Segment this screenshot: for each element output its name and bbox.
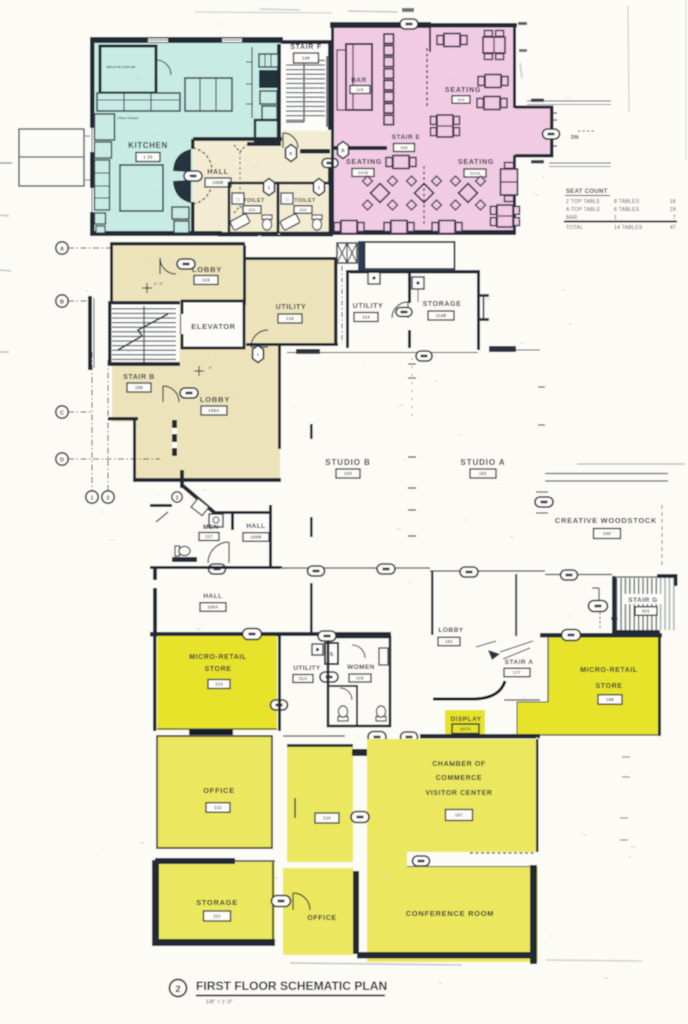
svg-text:TOILET: TOILET <box>294 198 316 204</box>
svg-text:198: 198 <box>135 385 143 390</box>
svg-text:103: 103 <box>344 471 352 476</box>
svg-text:101: 101 <box>445 639 453 644</box>
svg-text:CHAMBER OF: CHAMBER OF <box>432 761 486 768</box>
svg-text:SEAT COUNT: SEAT COUNT <box>566 189 608 195</box>
svg-text:117: 117 <box>205 534 213 539</box>
svg-text:STAIR F: STAIR F <box>290 44 322 51</box>
svg-text:I: I <box>257 352 258 357</box>
svg-text:47: 47 <box>670 225 676 231</box>
svg-text:1/8" = 1'-0": 1/8" = 1'-0" <box>206 1000 233 1006</box>
svg-text:LOBBY: LOBBY <box>438 627 463 634</box>
svg-text:1: 1 <box>614 215 617 221</box>
svg-text:STUDIO A: STUDIO A <box>460 458 505 467</box>
svg-text:2: 2 <box>106 496 109 502</box>
svg-text:121: 121 <box>248 208 255 212</box>
svg-text:HALL: HALL <box>207 169 228 176</box>
svg-text:UTILITY: UTILITY <box>353 303 384 310</box>
svg-text:114B: 114B <box>436 313 447 318</box>
svg-text:100B: 100B <box>250 535 261 540</box>
svg-text:TOILET: TOILET <box>243 198 265 204</box>
svg-text:114: 114 <box>362 315 370 320</box>
svg-text:177: 177 <box>513 670 521 675</box>
svg-text:116: 116 <box>286 316 294 321</box>
svg-text:MICRO-RETAIL: MICRO-RETAIL <box>580 667 638 674</box>
svg-text:C: C <box>60 411 64 417</box>
svg-text:2: 2 <box>175 984 180 995</box>
svg-text:COMMERCE: COMMERCE <box>436 775 482 782</box>
svg-text:E: E <box>289 151 292 156</box>
svg-text:VISITOR CENTER: VISITOR CENTER <box>425 790 492 797</box>
svg-text:DN: DN <box>611 616 619 621</box>
svg-text:24: 24 <box>670 207 676 213</box>
svg-text:HALL: HALL <box>203 593 222 600</box>
svg-text:102: 102 <box>479 471 487 476</box>
svg-text:14 TABLES: 14 TABLES <box>614 225 643 231</box>
svg-text:16: 16 <box>670 199 676 205</box>
svg-text:A: A <box>60 247 64 253</box>
svg-text:112: 112 <box>214 805 222 810</box>
svg-text:SEATING: SEATING <box>346 159 382 166</box>
svg-text:STUDIO B: STUDIO B <box>325 458 370 467</box>
svg-text:107: 107 <box>455 813 463 818</box>
svg-text:113: 113 <box>215 682 223 687</box>
svg-text:LOBBY: LOBBY <box>200 395 230 404</box>
svg-text:B: B <box>60 300 64 306</box>
svg-text:LOBBY: LOBBY <box>192 265 222 274</box>
svg-text:106: 106 <box>606 697 614 702</box>
svg-text:8 TABLES: 8 TABLES <box>614 199 640 205</box>
svg-text:HALL: HALL <box>246 523 265 530</box>
svg-text:STAIR B: STAIR B <box>123 374 155 381</box>
svg-text:BAR: BAR <box>566 215 577 221</box>
svg-text:□: □ <box>285 197 288 203</box>
svg-text:TOTAL: TOTAL <box>566 225 583 231</box>
svg-text:DN: DN <box>571 135 579 141</box>
svg-text:121B: 121B <box>358 171 368 175</box>
svg-text:124: 124 <box>457 98 465 102</box>
svg-text:125: 125 <box>356 88 363 92</box>
svg-text:2 Door Freezer: 2 Door Freezer <box>117 116 139 120</box>
svg-text:115: 115 <box>356 676 364 681</box>
svg-text:105B: 105B <box>212 180 223 185</box>
svg-text:D: D <box>60 458 64 464</box>
svg-text:□: □ <box>236 197 239 203</box>
svg-text:5: 5 <box>330 652 333 658</box>
svg-text:1: 1 <box>90 496 93 502</box>
svg-text:STAIR E: STAIR E <box>392 134 421 141</box>
svg-text:2: 2 <box>176 496 179 502</box>
svg-text:FIRST FLOOR SCHEMATIC PLAN: FIRST FLOOR SCHEMATIC PLAN <box>196 979 387 993</box>
svg-text:321: 321 <box>642 609 650 614</box>
svg-text:SEATING: SEATING <box>445 87 481 94</box>
svg-text:107A: 107A <box>460 727 471 732</box>
svg-text:SEATING: SEATING <box>458 159 494 166</box>
svg-text:STAIR G: STAIR G <box>628 597 657 604</box>
svg-text:STORAGE: STORAGE <box>196 898 238 907</box>
svg-text:UTILITY: UTILITY <box>293 665 321 672</box>
svg-text:UTILITY: UTILITY <box>276 304 307 311</box>
svg-text:CREATIVE WOODSTOCK: CREATIVE WOODSTOCK <box>555 516 657 525</box>
svg-text:STAIR A: STAIR A <box>505 659 534 666</box>
svg-text:-0' - 0": -0' - 0" <box>153 282 164 286</box>
svg-text:105A: 105A <box>208 408 219 413</box>
svg-text:OFFICE: OFFICE <box>307 915 336 922</box>
svg-text:OFFICE: OFFICE <box>203 786 235 795</box>
svg-text:STORE: STORE <box>205 666 232 673</box>
svg-text:ELEVATOR: ELEVATOR <box>191 322 235 331</box>
svg-text:121A: 121A <box>470 171 480 175</box>
svg-text:STORAGE: STORAGE <box>423 301 462 308</box>
svg-text:111: 111 <box>213 914 221 919</box>
svg-text:-0': -0' <box>208 366 212 370</box>
svg-text:CONFERENCE ROOM: CONFERENCE ROOM <box>406 909 494 918</box>
svg-text:122: 122 <box>299 208 306 212</box>
svg-text:MEN: MEN <box>203 524 219 531</box>
svg-text:110: 110 <box>323 816 331 821</box>
svg-text:195: 195 <box>400 146 407 150</box>
svg-text:105: 105 <box>603 531 611 536</box>
svg-text:WALK-IN COOLER: WALK-IN COOLER <box>107 65 136 69</box>
svg-text:WOMEN: WOMEN <box>347 664 375 671</box>
svg-text:100A: 100A <box>207 605 218 610</box>
svg-text:1 20: 1 20 <box>143 155 153 160</box>
svg-text:STORE: STORE <box>596 683 623 690</box>
svg-text:115: 115 <box>202 278 210 283</box>
svg-text:146: 146 <box>302 56 310 61</box>
svg-text:6 TABLES: 6 TABLES <box>614 207 640 213</box>
svg-text:7: 7 <box>673 215 676 221</box>
svg-text:31A: 31A <box>299 676 308 681</box>
svg-text:2 TOP TABLE: 2 TOP TABLE <box>566 199 601 205</box>
svg-text:KITCHEN: KITCHEN <box>128 141 168 150</box>
svg-text:DISPLAY: DISPLAY <box>450 716 481 723</box>
svg-text:MICRO-RETAIL: MICRO-RETAIL <box>189 654 247 661</box>
svg-text:BAR: BAR <box>351 77 367 84</box>
svg-text:4-TOP TABLE: 4-TOP TABLE <box>566 207 601 213</box>
